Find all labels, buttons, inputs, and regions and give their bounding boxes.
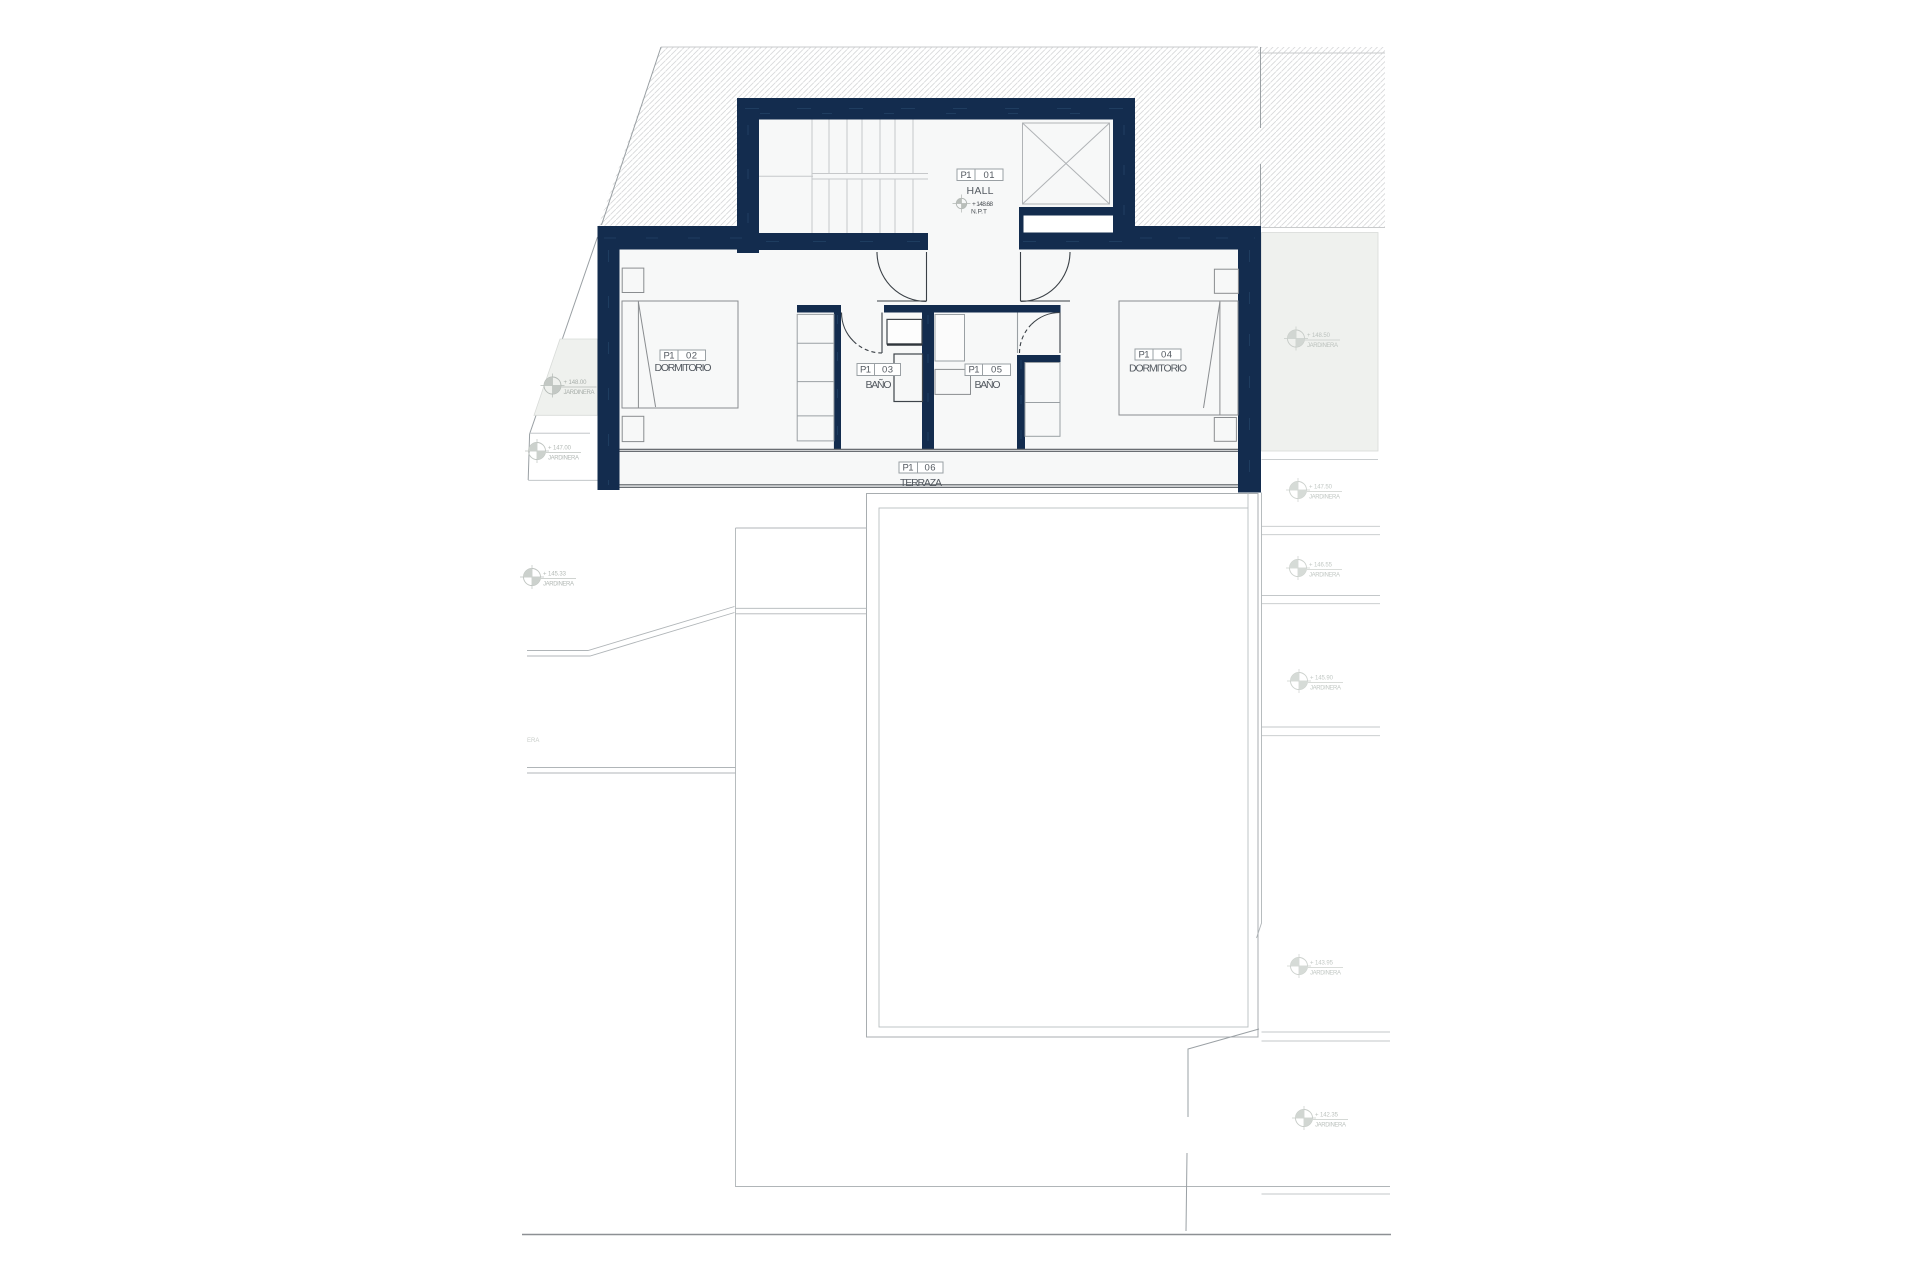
svg-text:BAÑO: BAÑO [975,378,1001,391]
svg-text:JARDINERA: JARDINERA [1307,343,1338,349]
svg-text:02: 02 [686,351,697,362]
svg-text:N.P.T: N.P.T [971,209,987,216]
svg-text:P1: P1 [969,365,980,376]
svg-text:+ 146.55: + 146.55 [1309,563,1333,569]
svg-text:+ 145.33: + 145.33 [543,572,567,578]
svg-text:JARDINERA: JARDINERA [1310,686,1341,692]
svg-text:04: 04 [1161,350,1172,361]
svg-text:DORMITORIO: DORMITORIO [1129,363,1187,375]
svg-text:+ 148.50: + 148.50 [1307,333,1331,339]
svg-text:+ 147.50: + 147.50 [1309,485,1333,491]
svg-text:BAÑO: BAÑO [866,378,892,391]
svg-text:HALL: HALL [967,185,994,197]
svg-text:JARDINERA: JARDINERA [1310,971,1341,977]
svg-text:P1: P1 [1139,350,1150,361]
svg-text:+ 142.35: + 142.35 [1315,1113,1339,1119]
svg-text:05: 05 [991,365,1002,376]
svg-text:P1: P1 [860,365,871,376]
svg-text:DORMITORIO: DORMITORIO [655,362,712,374]
svg-text:+ 148.00: + 148.00 [564,380,588,386]
svg-text:JARDINERA: JARDINERA [1309,573,1340,579]
svg-text:TERRAZA: TERRAZA [900,477,942,489]
svg-text:P1: P1 [961,170,972,181]
svg-text:JARDINERA: JARDINERA [543,582,574,588]
svg-text:JARDINERA: JARDINERA [564,390,595,396]
svg-text:+ 145.90: + 145.90 [1310,676,1334,682]
svg-text:+ 143.95: + 143.95 [1310,961,1334,967]
svg-text:P1: P1 [664,351,675,362]
svg-text:+ 148.68: + 148.68 [972,201,993,208]
svg-text:JARDINERA: JARDINERA [548,456,579,462]
svg-text:03: 03 [882,365,893,376]
svg-text:JARDINERA: JARDINERA [1315,1123,1346,1129]
svg-text:P1: P1 [903,463,914,474]
svg-text:ERA: ERA [527,738,539,744]
svg-text:+ 147.00: + 147.00 [548,446,572,452]
svg-text:JARDINERA: JARDINERA [1309,495,1340,501]
svg-text:01: 01 [984,170,995,181]
svg-text:06: 06 [925,463,936,474]
